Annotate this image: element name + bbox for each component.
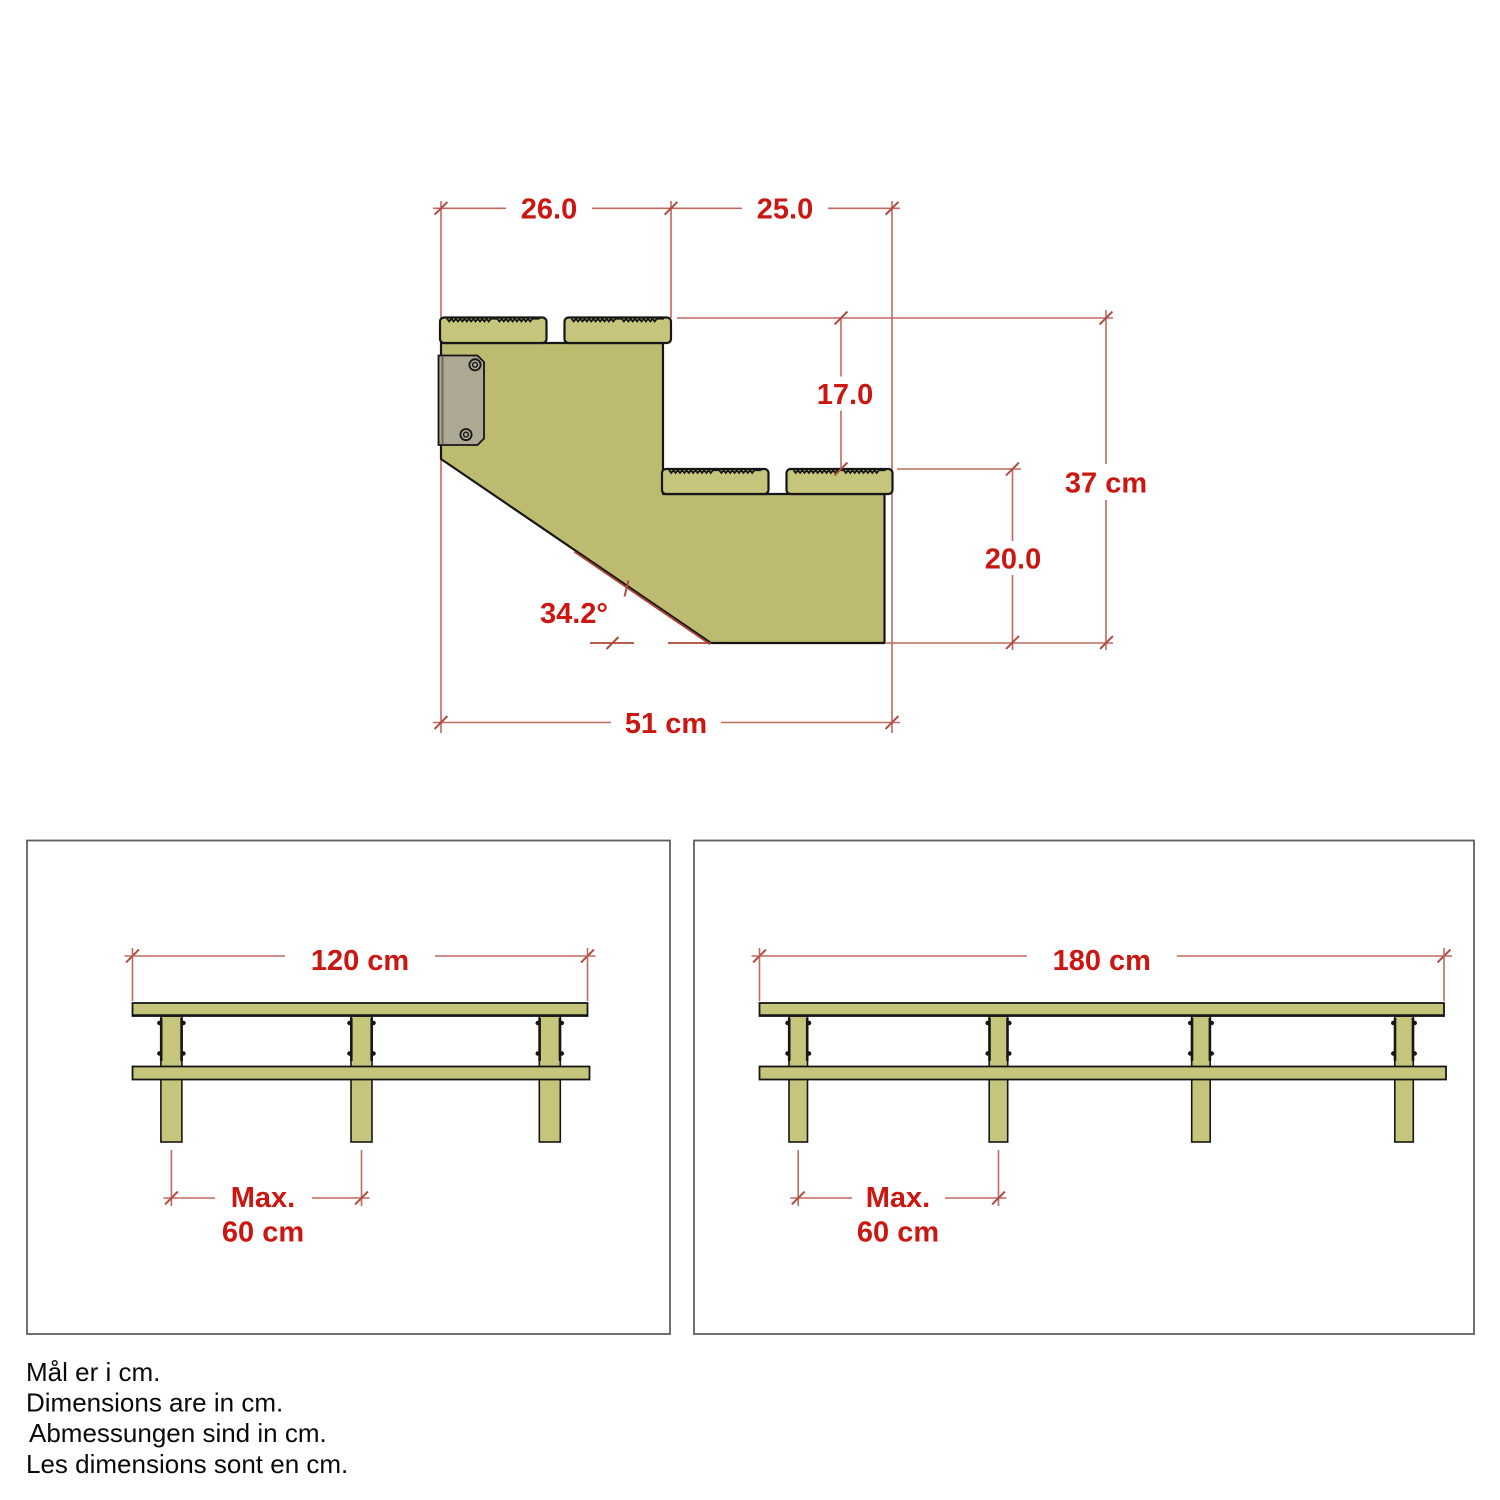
svg-text:180 cm: 180 cm: [1053, 945, 1151, 977]
svg-text:60 cm: 60 cm: [857, 1217, 939, 1249]
svg-text:120 cm: 120 cm: [311, 945, 409, 977]
svg-text:20.0: 20.0: [985, 544, 1041, 576]
svg-text:Dimensions are in cm.: Dimensions are in cm.: [26, 1388, 283, 1418]
svg-text:Abmessungen sind in cm.: Abmessungen sind in cm.: [29, 1418, 327, 1448]
svg-text:Mål er i cm.: Mål er i cm.: [26, 1357, 160, 1387]
svg-text:60 cm: 60 cm: [222, 1217, 304, 1249]
svg-text:34.2°: 34.2°: [540, 598, 608, 630]
svg-text:Les dimensions sont en cm.: Les dimensions sont en cm.: [26, 1449, 348, 1479]
svg-text:Max.: Max.: [866, 1182, 930, 1214]
svg-text:51 cm: 51 cm: [625, 708, 707, 740]
svg-text:37 cm: 37 cm: [1065, 468, 1147, 500]
svg-text:25.0: 25.0: [757, 194, 813, 226]
svg-text:Max.: Max.: [231, 1182, 295, 1214]
svg-text:17.0: 17.0: [817, 379, 873, 411]
svg-text:26.0: 26.0: [521, 194, 577, 226]
